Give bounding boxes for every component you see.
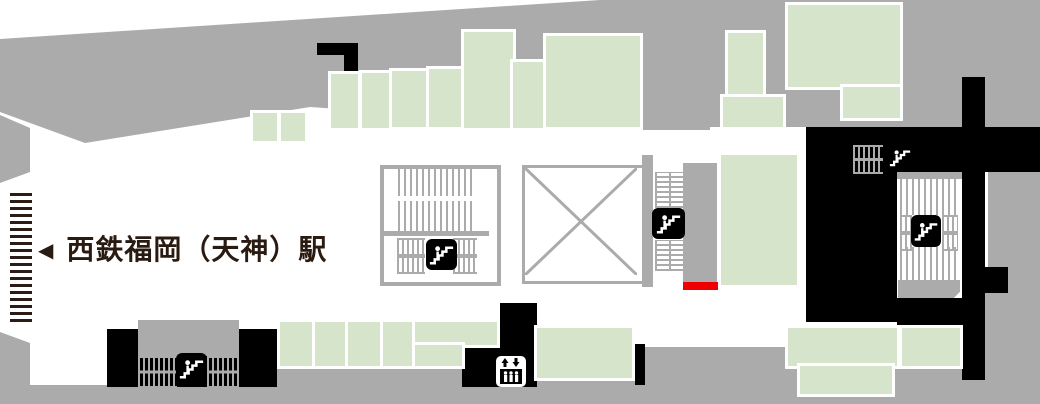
shop-block [415, 345, 462, 366]
area-gray-left-wedge [0, 115, 30, 183]
stairwell-landing-bar [384, 231, 489, 236]
right-column-pedestal [898, 280, 960, 298]
floor-map: ◀ 西鉄福岡（天神）駅 [0, 0, 1040, 404]
shop-block [721, 155, 797, 285]
shop-block [331, 74, 358, 128]
escalator-icon [176, 353, 207, 384]
shop-block [392, 71, 426, 127]
shop-block [281, 113, 305, 141]
shop-block [788, 328, 897, 366]
shop-block [253, 113, 277, 141]
escalator-icon [911, 215, 941, 247]
station-label-text: 西鉄福岡（天神）駅 [66, 236, 327, 264]
shop-block [788, 5, 900, 87]
stair-hatch [138, 356, 177, 388]
left-arrow-icon: ◀ [38, 240, 53, 260]
x-room [522, 165, 646, 284]
escalator-steps [655, 172, 685, 208]
stair-hatch [942, 215, 958, 251]
void-under-pedestal [897, 298, 985, 325]
shop-block [362, 73, 389, 128]
stairwell-steps-lower [398, 201, 476, 231]
central-platform [683, 163, 717, 282]
shop-block [415, 322, 497, 345]
void-bar-right-top [962, 77, 985, 127]
shop-block [843, 87, 900, 118]
shop-block [513, 62, 543, 128]
shop-block [348, 322, 381, 366]
escalator-icon [652, 208, 685, 239]
void-right-of-column [962, 172, 985, 267]
stair-unit-box [138, 320, 239, 356]
void-step-right [962, 267, 1008, 293]
station-label: ◀ 西鉄福岡（天神）駅 [38, 236, 327, 264]
shop-block [464, 32, 513, 128]
shop-block [546, 36, 640, 127]
shop-block [728, 33, 763, 97]
shop-block [800, 366, 892, 394]
shop-block [723, 97, 783, 127]
stairwell-steps-upper [398, 169, 476, 196]
stair-hatch [207, 356, 239, 388]
void-sliver-bottom [635, 344, 645, 385]
escalator-icon [886, 144, 914, 171]
elevator-icon [496, 356, 526, 387]
stair-hatch [853, 145, 883, 174]
void-band-right [806, 127, 1040, 172]
shop-block [315, 322, 346, 366]
right-column-header [897, 172, 962, 179]
escalator-icon [426, 239, 457, 270]
x-room-diagonals [525, 168, 637, 275]
shop-block [537, 328, 632, 378]
area-gray-bottom-left-wedge [0, 330, 30, 404]
shop-block [383, 322, 412, 366]
void-left-of-column [806, 172, 897, 322]
right-column-steps-upper [900, 179, 958, 215]
shop-block [902, 328, 960, 366]
escalator-steps [655, 240, 685, 271]
corridor-under-shops [277, 369, 463, 385]
right-column-steps-lower [900, 247, 958, 280]
stair-hatch [397, 238, 425, 274]
red-location-bar [683, 282, 718, 290]
shop-block [429, 69, 461, 127]
shop-block [280, 322, 313, 366]
platform-stairs [10, 190, 32, 322]
